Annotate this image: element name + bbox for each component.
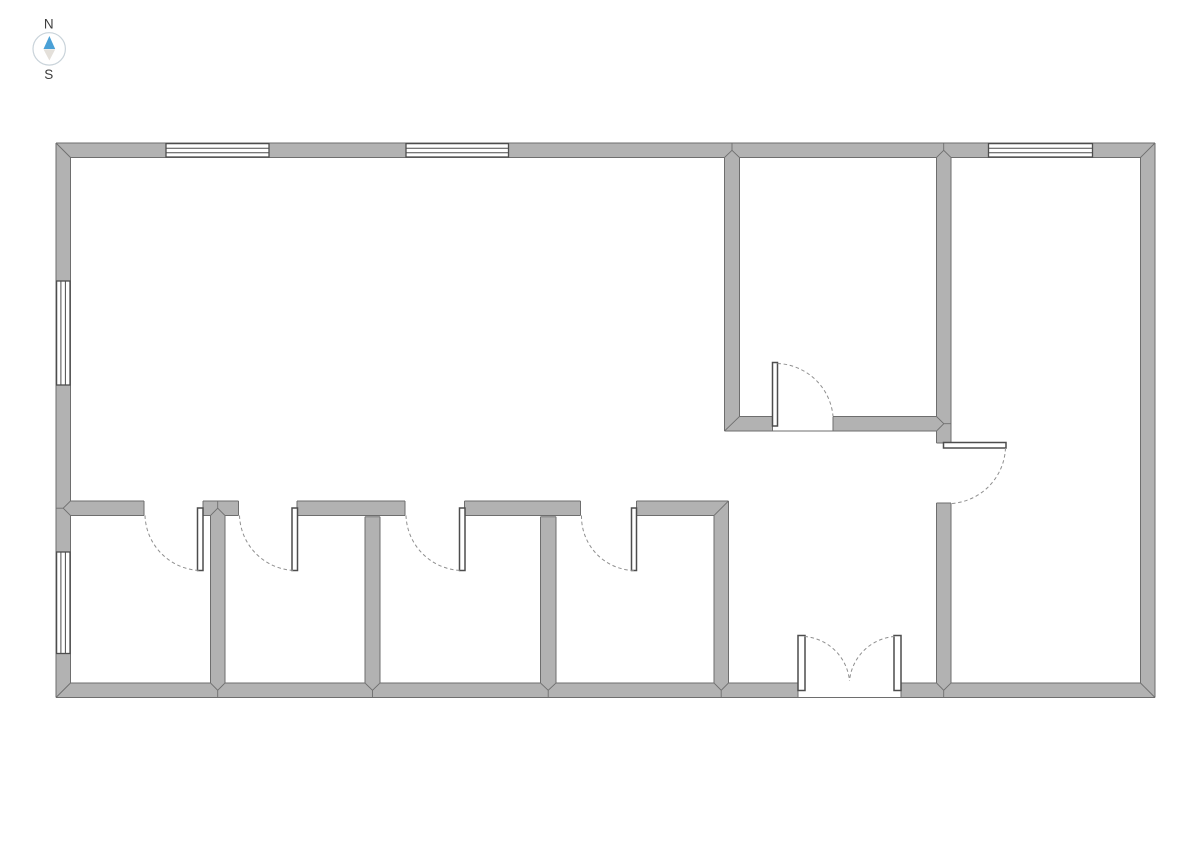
svg-text:S: S xyxy=(44,67,53,82)
svg-text:N: N xyxy=(44,17,54,32)
